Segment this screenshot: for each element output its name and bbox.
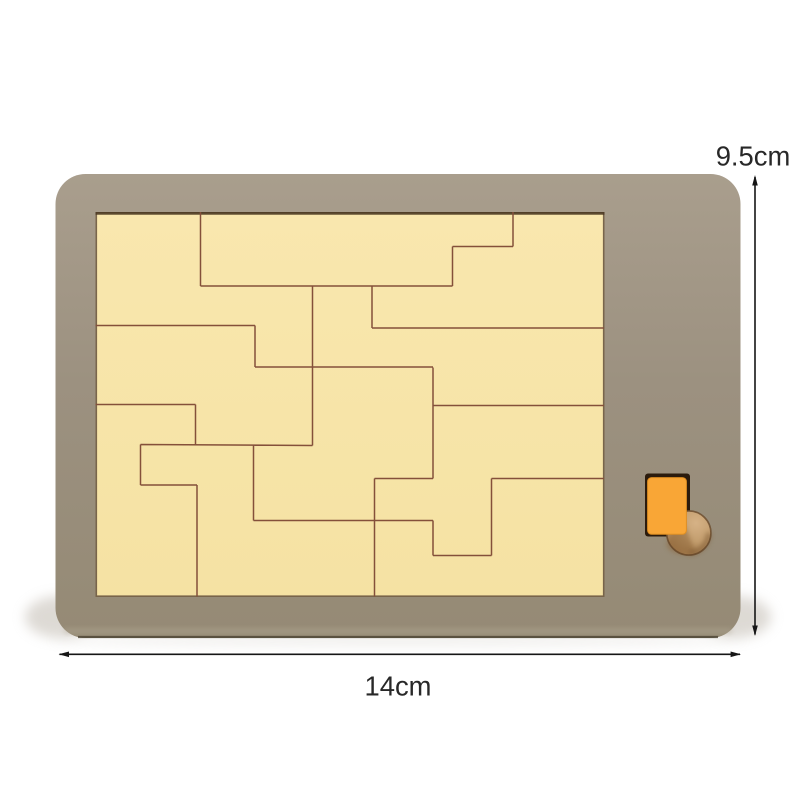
svg-text:9.5cm: 9.5cm [716, 141, 791, 172]
svg-text:14cm: 14cm [365, 671, 432, 702]
